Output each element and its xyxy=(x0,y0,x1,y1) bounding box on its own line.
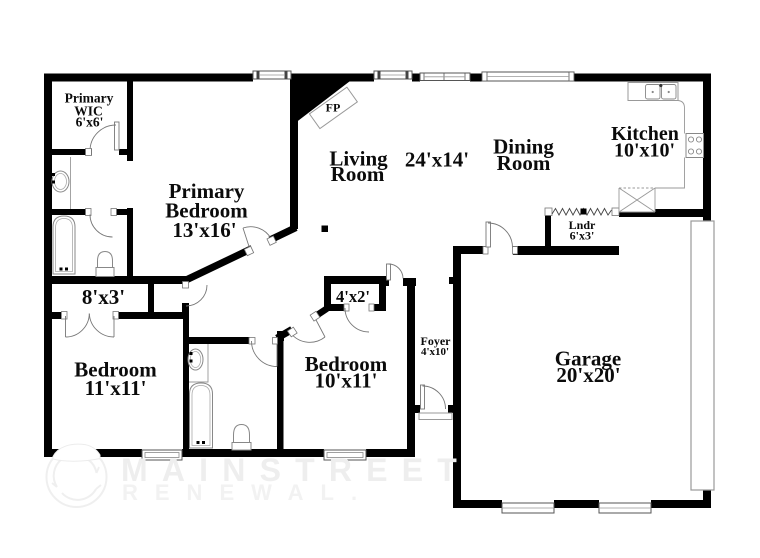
svg-text:10'x11': 10'x11' xyxy=(314,369,377,393)
svg-text:6'x6': 6'x6' xyxy=(76,115,104,130)
svg-text:RENEWAL.: RENEWAL. xyxy=(122,480,374,505)
svg-text:4'x10': 4'x10' xyxy=(421,346,449,358)
svg-text:11'x11': 11'x11' xyxy=(85,376,147,400)
svg-text:Room: Room xyxy=(497,151,551,175)
svg-text:10'x10': 10'x10' xyxy=(614,140,675,162)
svg-text:20'x20': 20'x20' xyxy=(556,363,620,387)
svg-text:24'x14': 24'x14' xyxy=(405,148,469,172)
svg-text:13'x16': 13'x16' xyxy=(172,218,236,242)
svg-text:4'x2': 4'x2' xyxy=(336,287,370,306)
svg-text:FP: FP xyxy=(326,101,341,115)
svg-text:Room: Room xyxy=(331,162,385,186)
svg-text:6'x3': 6'x3' xyxy=(570,229,595,243)
svg-text:8'x3': 8'x3' xyxy=(82,285,125,309)
